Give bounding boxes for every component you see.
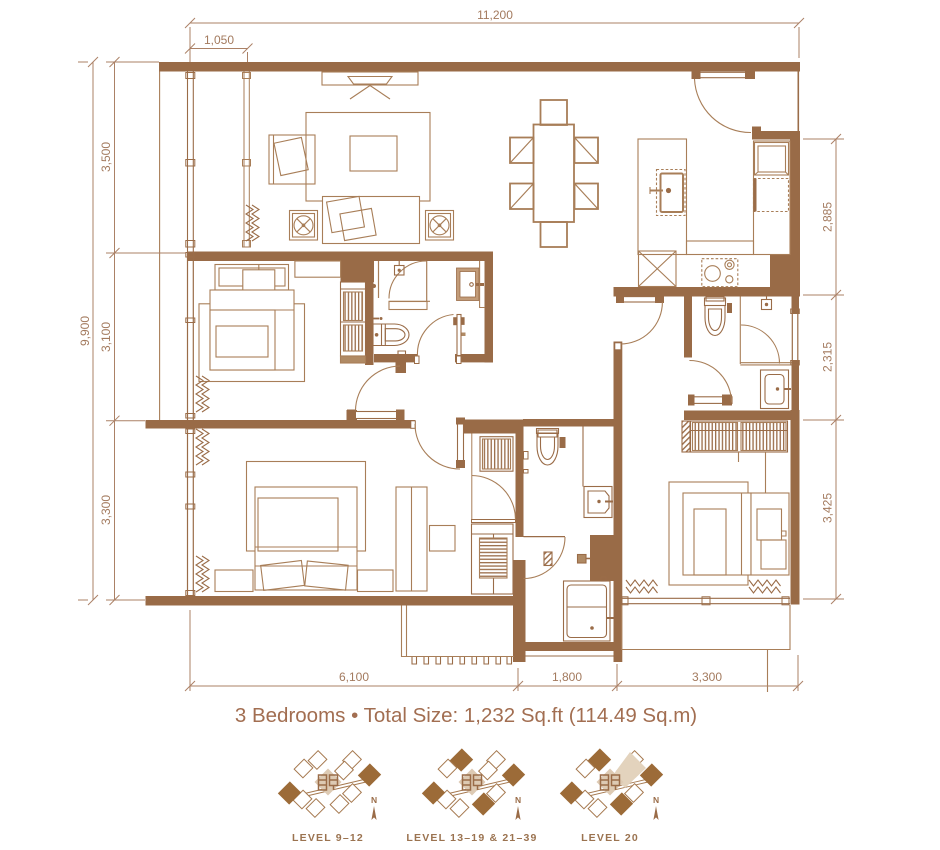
svg-text:3,500: 3,500: [99, 142, 113, 172]
svg-text:2,315: 2,315: [821, 342, 835, 372]
svg-text:11,200: 11,200: [477, 8, 513, 22]
svg-text:2,885: 2,885: [821, 202, 835, 232]
svg-text:6,100: 6,100: [339, 670, 369, 684]
svg-text:3,300: 3,300: [692, 670, 722, 684]
svg-text:LEVEL 13–19 & 21–39: LEVEL 13–19 & 21–39: [406, 832, 537, 844]
svg-text:3,425: 3,425: [821, 493, 835, 523]
svg-text:3 Bedrooms • Total Size: 1,232: 3 Bedrooms • Total Size: 1,232 Sq.ft (11…: [235, 704, 697, 727]
svg-text:LEVEL 9–12: LEVEL 9–12: [292, 832, 364, 844]
svg-text:3,100: 3,100: [99, 322, 113, 352]
svg-text:LEVEL 20: LEVEL 20: [581, 832, 639, 844]
svg-text:1,050: 1,050: [204, 33, 234, 47]
svg-text:1,800: 1,800: [552, 670, 582, 684]
svg-text:9,900: 9,900: [78, 316, 92, 346]
svg-text:3,300: 3,300: [99, 495, 113, 525]
